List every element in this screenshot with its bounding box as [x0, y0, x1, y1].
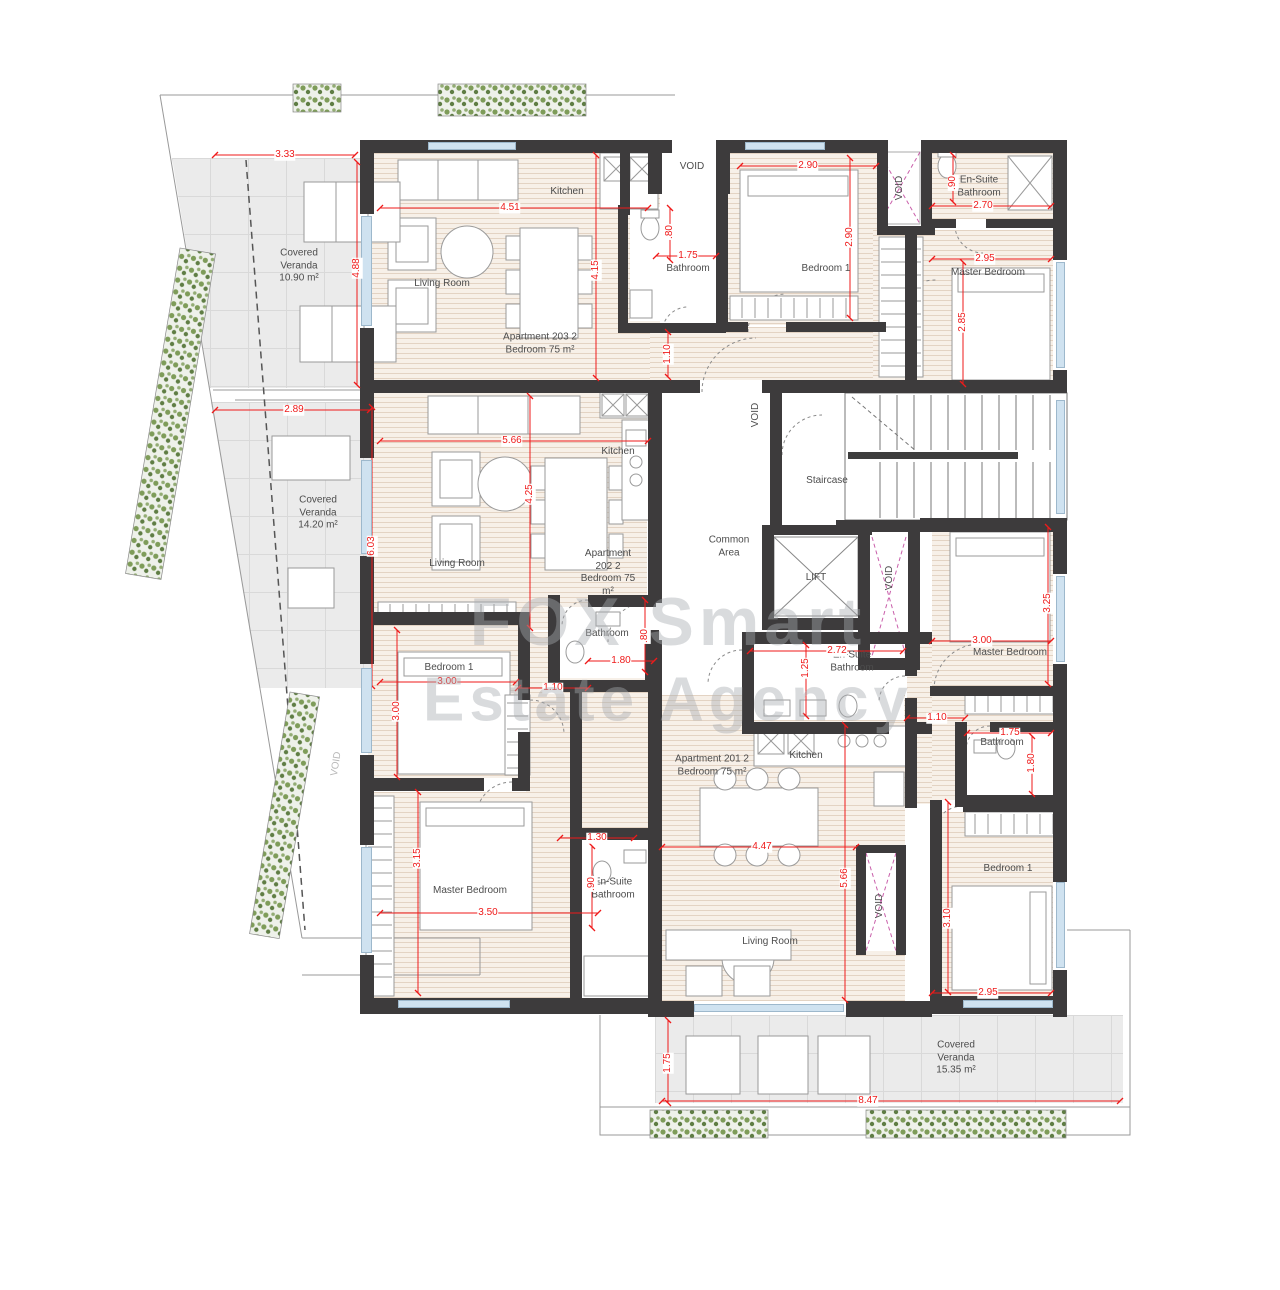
dimension-label: 3.33	[274, 150, 295, 161]
wall-segment	[360, 755, 374, 845]
label-a202-living: Living Room	[417, 558, 497, 571]
dimension-label: 3.50	[477, 908, 498, 919]
label-veranda-tl: Covered Veranda 10.90 m²	[271, 247, 327, 285]
wall-segment	[963, 800, 1067, 812]
dimension-label: 3.00	[971, 636, 992, 647]
label-core-common: Common Area	[704, 535, 754, 560]
dimension-label: 1.75	[663, 1052, 674, 1073]
wall-segment	[1053, 518, 1067, 574]
watermark-line2: Estate Agency	[423, 665, 913, 736]
wall-segment	[846, 1001, 932, 1017]
wall-segment	[360, 556, 374, 664]
wall-segment	[512, 778, 530, 791]
dimension-label: 1.10	[663, 343, 674, 364]
dimension-label: 4.15	[591, 259, 602, 280]
wall-segment	[922, 140, 1067, 153]
label-a201-title: Apartment 201 2 Bedroom 75 m²	[667, 754, 757, 779]
window	[361, 216, 372, 326]
label-a202-kitchen: Kitchen	[588, 446, 648, 459]
wall-segment	[762, 380, 1067, 393]
wall-segment	[716, 322, 748, 332]
wall-segment	[716, 140, 730, 194]
window	[694, 1004, 844, 1012]
dimension-label: 6.03	[367, 535, 378, 556]
wall-segment	[648, 393, 662, 603]
wall-segment	[856, 845, 866, 955]
dimension-label: 2.85	[958, 311, 969, 332]
label-a201-master: Master Bedroom	[963, 647, 1058, 660]
window	[361, 847, 372, 953]
floor-plan: FOX Smart Estate Agency Covered Veranda …	[0, 0, 1280, 1290]
dimension-label: 2.89	[283, 405, 304, 416]
dimension-label: 1.10	[926, 713, 947, 724]
label-a201-bed1: Bedroom 1	[973, 863, 1043, 876]
watermark-line1: FOX Smart	[470, 583, 866, 661]
wall-segment	[922, 219, 956, 228]
wall-segment	[360, 778, 484, 791]
wall-segment	[896, 845, 906, 955]
dimension-label: 1.75	[999, 728, 1020, 739]
label-a201-bath: Bathroom	[972, 737, 1032, 750]
label-a203-kitchen: Kitchen	[537, 186, 597, 199]
label-a203-living: Living Room	[402, 278, 482, 291]
dimension-label: 2.90	[797, 161, 818, 172]
wall-segment	[360, 140, 672, 153]
wall-segment	[986, 219, 1067, 228]
dimension-label: 1.75	[677, 251, 698, 262]
wall-segment	[930, 686, 1067, 696]
window	[398, 1000, 510, 1008]
wall-segment	[930, 800, 942, 1012]
dimension-label: 2.90	[845, 226, 856, 247]
dimension-label: 4.47	[751, 842, 772, 853]
dimension-label: 2.95	[974, 254, 995, 265]
dimension-label: 1.80	[1027, 752, 1038, 773]
dimension-label: .90	[587, 876, 598, 892]
wall-segment	[877, 140, 888, 232]
label-a201-kitchen: Kitchen	[781, 750, 831, 763]
wall-segment	[570, 828, 582, 1012]
dimension-label: .80	[665, 224, 676, 240]
wall-segment	[770, 393, 782, 533]
wall-segment	[856, 845, 906, 853]
dimension-label: 3.15	[413, 847, 424, 868]
label-a203-bath: Bathroom	[653, 263, 723, 276]
label-a201-living: Living Room	[730, 936, 810, 949]
wall-segment	[648, 140, 662, 194]
wall-segment	[360, 392, 374, 458]
wall-segment	[905, 232, 917, 382]
wall-segment	[1053, 140, 1067, 260]
wall-segment	[618, 205, 628, 333]
label-void4: VOID	[874, 888, 887, 924]
dimension-label: 4.88	[352, 257, 363, 278]
dimension-label: 2.70	[972, 201, 993, 212]
label-veranda-ml: Covered Veranda 14.20 m²	[290, 494, 346, 532]
wall-segment	[360, 140, 374, 214]
label-a203-ensuite: En-Suite Bathroom	[952, 175, 1006, 200]
label-veranda-b: Covered Veranda 15.35 m²	[924, 1039, 988, 1077]
dimension-label: 4.25	[525, 483, 536, 504]
wall-segment	[570, 828, 662, 840]
dimension-label: 3.10	[943, 907, 954, 928]
label-a203-title: Apartment 203 2 Bedroom 75 m²	[496, 332, 584, 357]
label-void3: VOID	[884, 560, 897, 596]
dimension-label: 4.51	[499, 203, 520, 214]
label-void1: VOID	[672, 161, 712, 174]
dimension-label: 5.66	[840, 867, 851, 888]
wall-segment	[786, 322, 886, 332]
wall-segment	[762, 525, 872, 535]
wall-segment	[572, 998, 662, 1014]
window	[745, 142, 825, 150]
window	[963, 1000, 1053, 1008]
window	[428, 142, 516, 150]
wall-segment	[360, 380, 700, 393]
label-core-stair: Staircase	[797, 475, 857, 488]
dimension-label: 5.66	[501, 436, 522, 447]
label-void6: VOID	[750, 400, 763, 430]
dimension-label: 3.25	[1043, 592, 1054, 613]
window	[1056, 400, 1065, 514]
window	[361, 668, 372, 753]
wall-segment	[920, 518, 1067, 530]
window	[1056, 882, 1065, 968]
label-a202-master: Master Bedroom	[423, 885, 518, 898]
staircase	[845, 393, 1067, 520]
label-void2: VOID	[894, 170, 907, 206]
window	[1056, 262, 1065, 368]
label-a203-bed1: Bedroom 1	[791, 263, 861, 276]
label-a203-master: Master Bedroom	[941, 267, 1036, 280]
dimension-label: 2.95	[977, 988, 998, 999]
dimension-label: 3.00	[392, 700, 403, 721]
wall-segment	[618, 323, 726, 333]
dimension-label: 1.30	[586, 833, 607, 844]
dimension-label: .90	[948, 175, 959, 191]
dimension-label: 8.47	[857, 1096, 878, 1107]
